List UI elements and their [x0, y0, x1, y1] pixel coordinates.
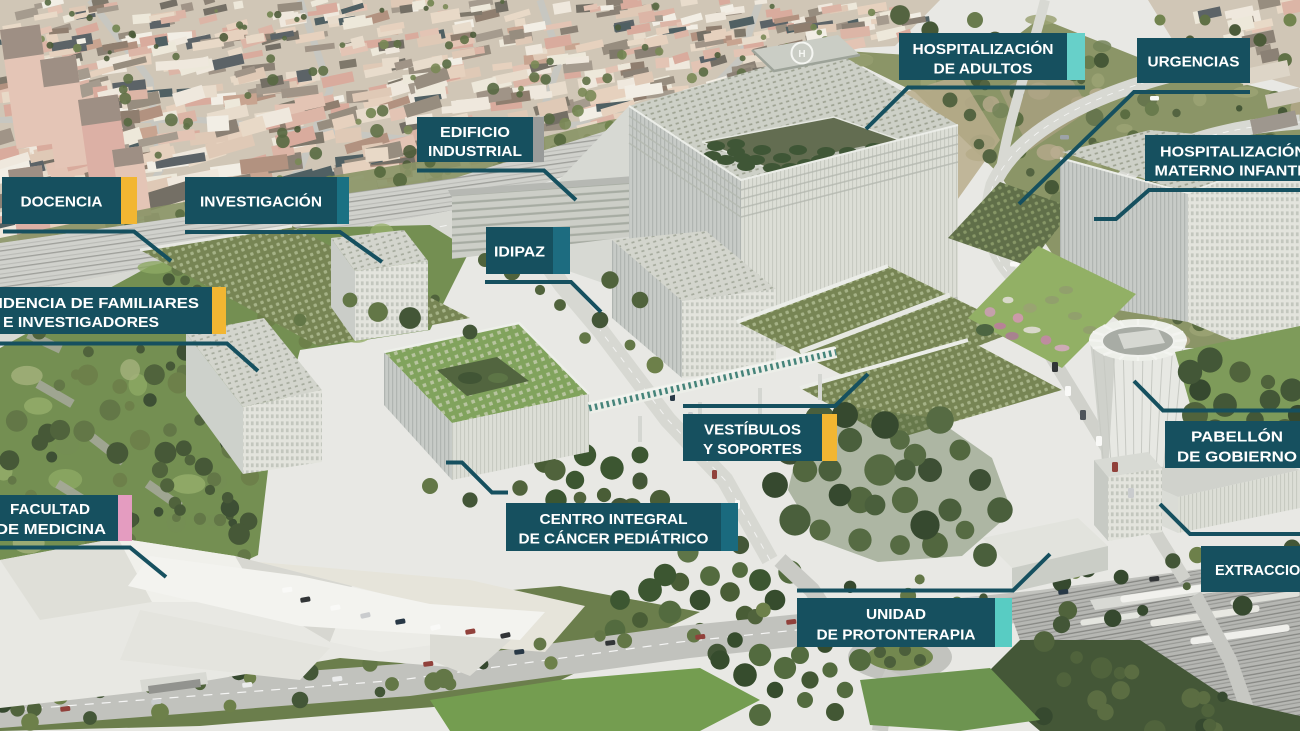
svg-text:VESTÍBULOS: VESTÍBULOS [704, 422, 801, 439]
svg-text:E INVESTIGADORES: E INVESTIGADORES [3, 314, 159, 331]
svg-text:PABELLÓN: PABELLÓN [1191, 428, 1283, 446]
svg-text:DE GOBIERNO: DE GOBIERNO [1177, 449, 1297, 466]
svg-text:INVESTIGACIÓN: INVESTIGACIÓN [200, 193, 322, 211]
svg-text:MATERNO INFANTIL: MATERNO INFANTIL [1155, 163, 1300, 180]
svg-text:DE ADULTOS: DE ADULTOS [934, 61, 1033, 78]
svg-text:CENTRO INTEGRAL: CENTRO INTEGRAL [540, 511, 688, 528]
svg-text:IDIPAZ: IDIPAZ [494, 244, 545, 261]
svg-text:HOSPITALIZACIÓN: HOSPITALIZACIÓN [913, 40, 1054, 58]
svg-text:EDIFICIO: EDIFICIO [440, 124, 510, 141]
svg-text:DE CÁNCER PEDIÁTRICO: DE CÁNCER PEDIÁTRICO [519, 531, 709, 548]
svg-text:EXTRACCIONES: EXTRACCIONES [1215, 562, 1300, 579]
svg-text:UNIDAD: UNIDAD [866, 606, 926, 623]
svg-text:RESIDENCIA DE FAMILIARES: RESIDENCIA DE FAMILIARES [0, 295, 199, 312]
svg-text:DOCENCIA: DOCENCIA [21, 194, 103, 211]
svg-text:URGENCIAS: URGENCIAS [1148, 54, 1240, 71]
svg-text:INDUSTRIAL: INDUSTRIAL [428, 143, 522, 160]
svg-text:DE MEDICINA: DE MEDICINA [0, 521, 106, 538]
svg-text:Y SOPORTES: Y SOPORTES [703, 441, 802, 458]
svg-text:FACULTAD: FACULTAD [10, 501, 90, 518]
svg-text:DE PROTONTERAPIA: DE PROTONTERAPIA [817, 627, 976, 644]
svg-text:HOSPITALIZACIÓN: HOSPITALIZACIÓN [1160, 143, 1300, 161]
